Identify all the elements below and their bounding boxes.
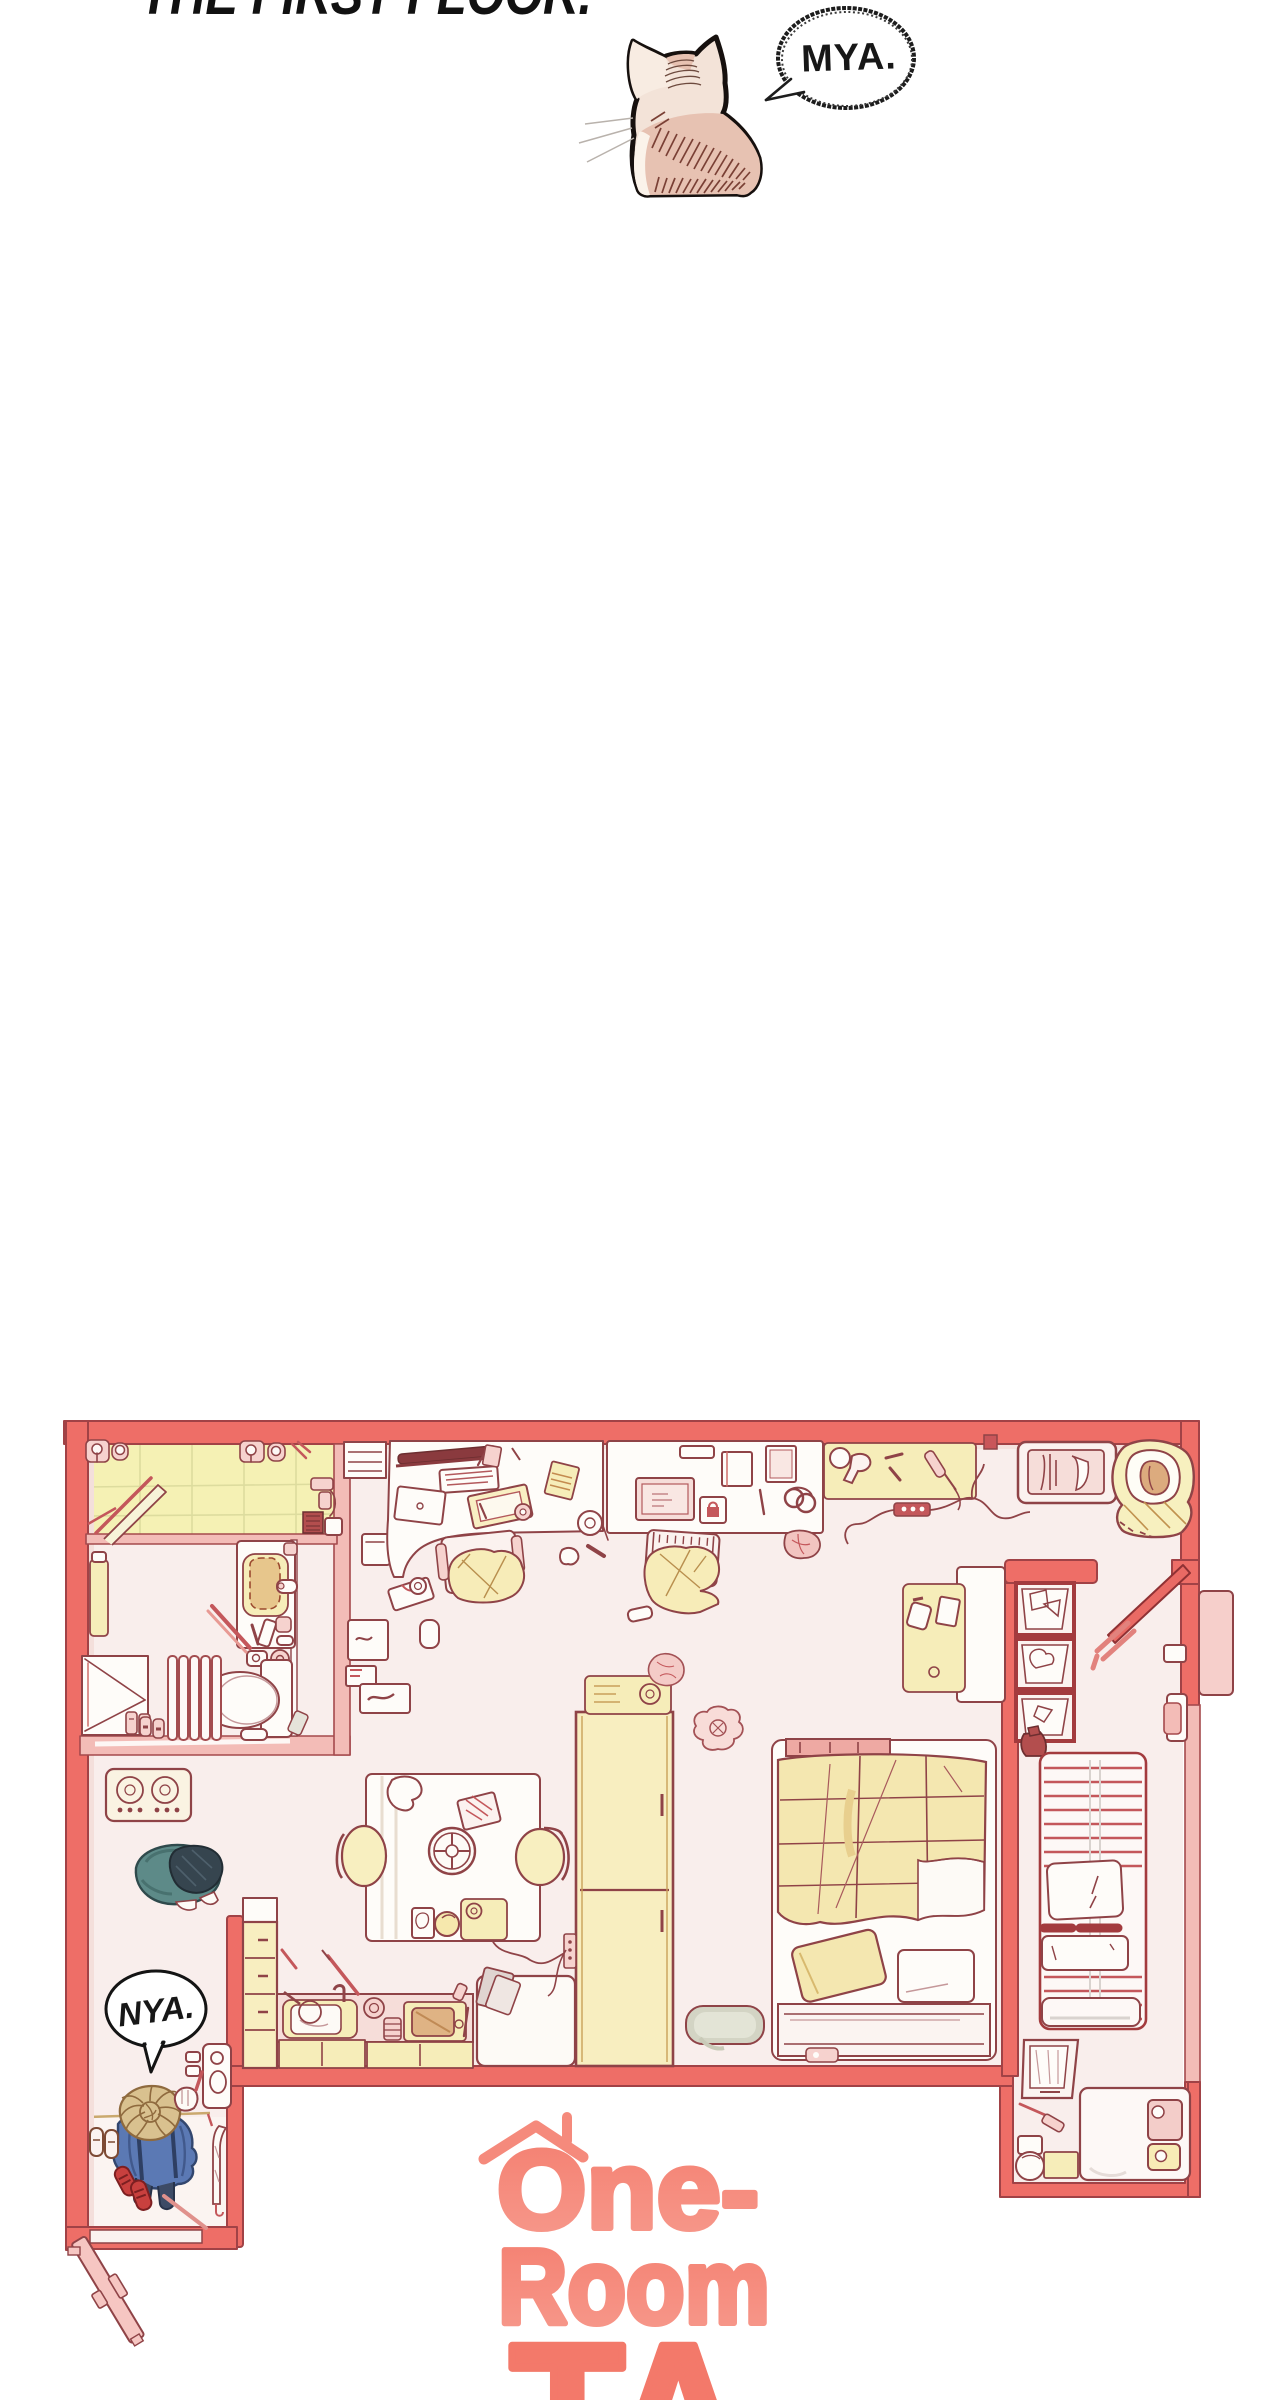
- svg-text:MYA.: MYA.: [800, 35, 897, 80]
- svg-text:TA: TA: [510, 2303, 746, 2400]
- svg-text:THE FIRST FLOOR.: THE FIRST FLOOR.: [140, 0, 592, 27]
